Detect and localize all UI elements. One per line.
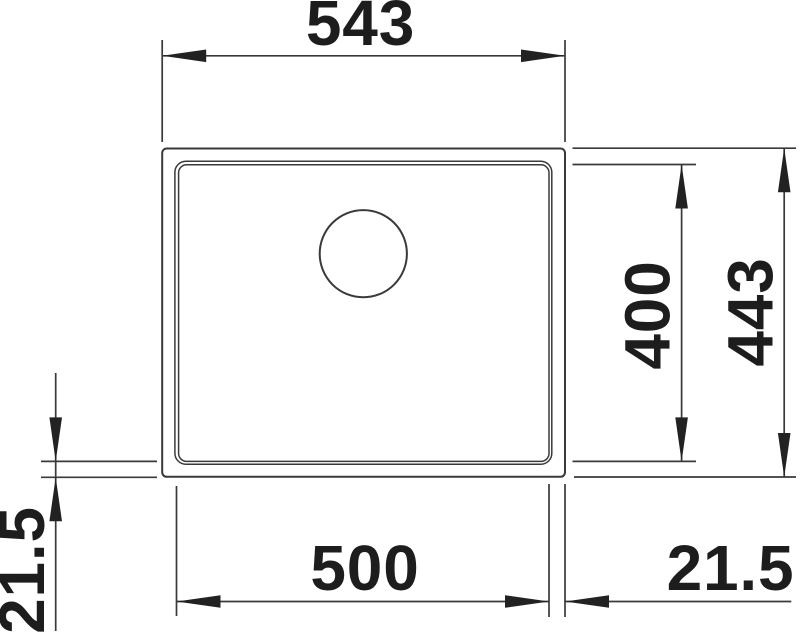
svg-text:21.5: 21.5: [667, 532, 795, 604]
svg-text:543: 543: [306, 0, 415, 59]
svg-text:21.5: 21.5: [0, 506, 58, 632]
svg-text:500: 500: [310, 532, 419, 604]
svg-text:443: 443: [715, 257, 787, 366]
svg-text:400: 400: [612, 260, 684, 369]
